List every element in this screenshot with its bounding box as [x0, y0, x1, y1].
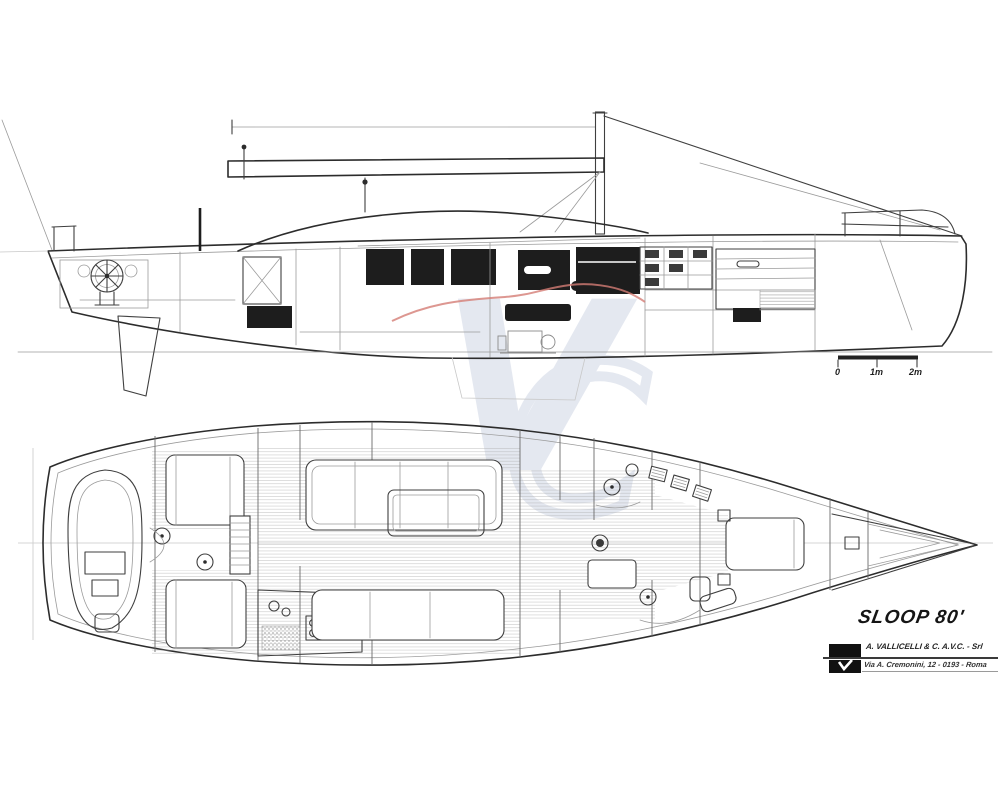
coachroof-line	[238, 211, 648, 251]
mast-section	[596, 539, 604, 547]
aft-head	[150, 528, 213, 570]
steering-wheel	[78, 260, 137, 305]
vang-block	[362, 179, 367, 184]
vanity-desk	[588, 560, 636, 588]
window-mullion-2	[444, 249, 451, 285]
window-pill-highlight	[524, 266, 551, 274]
stern-fittings	[52, 208, 200, 308]
designer-block: A. VALLICELLI & C. A.V.C. - Srl Via A. C…	[820, 640, 1000, 680]
boom-fitting-knob	[242, 145, 247, 150]
forepeak-bulkhead	[880, 240, 912, 330]
scale-label-0: 0	[835, 367, 840, 377]
stern-extension-line	[0, 251, 48, 252]
aft-berth-starboard	[166, 455, 244, 525]
window-mullion-1	[404, 249, 411, 285]
tender-console	[92, 580, 118, 596]
mast	[596, 112, 605, 234]
rigging	[2, 112, 962, 250]
galley-counter	[262, 626, 300, 650]
drawing-title: SLOOP 80'	[844, 607, 978, 629]
designer-address-line: Via A. Cremonini, 12 - 0193 - Roma	[864, 660, 1000, 669]
scale-label-2m: 2m	[908, 367, 922, 377]
mainsheet-line-1	[520, 172, 600, 232]
deck-locker-pill	[571, 281, 598, 291]
forward-berth	[716, 249, 815, 322]
yacht-plan-sheet: V C	[0, 0, 1000, 800]
designer-rule-2	[862, 671, 998, 672]
fore-cabin-bench	[698, 587, 737, 613]
inner-stay-line	[700, 163, 940, 230]
bow-pulpit	[842, 210, 955, 236]
scale-bar: 0 1m 2m	[835, 358, 922, 378]
scale-label-1m: 1m	[870, 367, 883, 377]
companionway-console	[247, 306, 292, 328]
tender-seat	[85, 552, 125, 574]
transom-panel	[60, 260, 148, 308]
aft-cabin-starboard	[166, 455, 244, 525]
island-bed	[726, 518, 804, 570]
companionway-stairs	[230, 516, 250, 574]
aft-cabin-port	[166, 580, 246, 648]
window-band-aft	[366, 249, 496, 285]
cockpit-seat-dark	[505, 304, 571, 321]
pushpit-rail	[52, 226, 76, 227]
coachroof	[238, 211, 648, 251]
backstay-line	[2, 120, 52, 250]
locker-unit	[640, 247, 712, 289]
forestay-line	[604, 116, 962, 236]
tender-dinghy	[68, 470, 142, 632]
yacht-drawing: V C	[0, 0, 1000, 800]
designer-rule	[823, 657, 998, 659]
designer-name-line: A. VALLICELLI & C. A.V.C. - Srl	[866, 642, 1000, 651]
aft-berth-port	[166, 580, 246, 648]
saloon-settee	[312, 590, 504, 640]
boom	[228, 158, 604, 177]
